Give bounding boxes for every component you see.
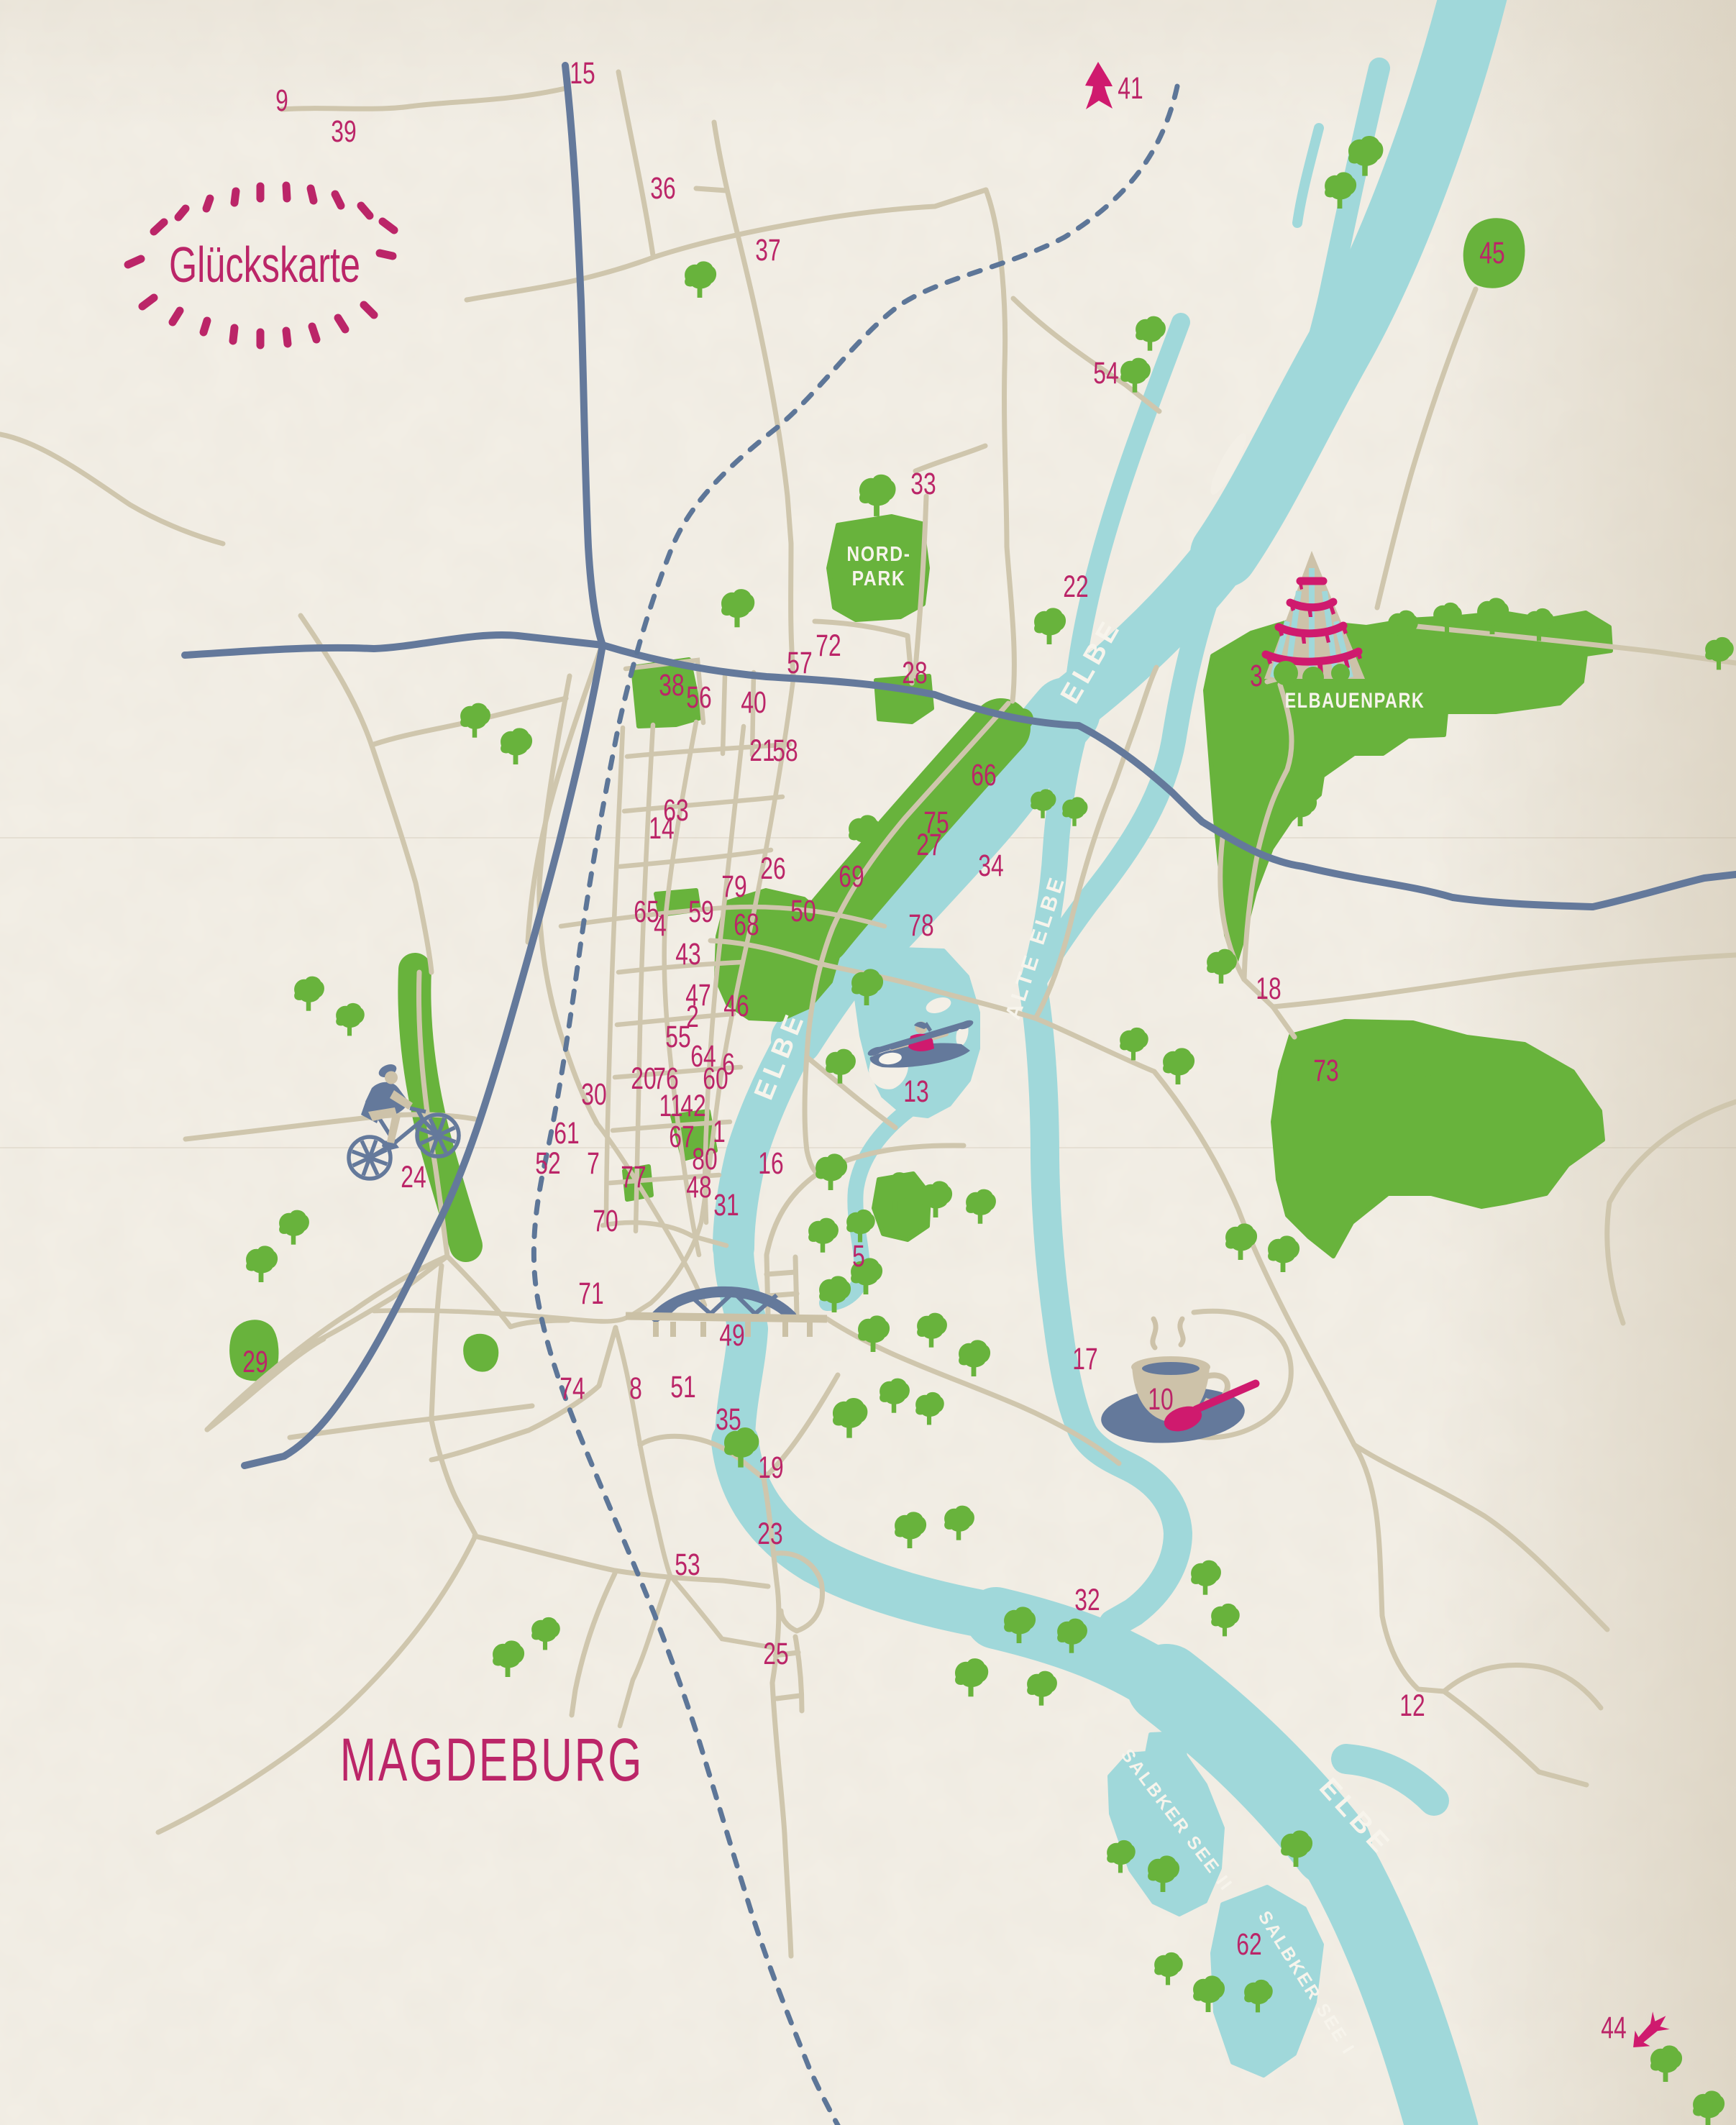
svg-text:33: 33 — [910, 467, 936, 501]
svg-text:73: 73 — [1313, 1054, 1338, 1088]
svg-text:70: 70 — [593, 1204, 618, 1238]
svg-text:30: 30 — [581, 1077, 606, 1112]
svg-text:78: 78 — [908, 908, 933, 943]
svg-text:34: 34 — [978, 849, 1003, 883]
svg-text:52: 52 — [535, 1146, 560, 1181]
svg-text:14: 14 — [649, 811, 674, 846]
svg-text:12: 12 — [1399, 1688, 1425, 1723]
svg-text:60: 60 — [703, 1061, 728, 1096]
svg-text:57: 57 — [787, 646, 812, 680]
svg-text:Glückskarte: Glückskarte — [169, 237, 360, 293]
svg-text:22: 22 — [1063, 570, 1088, 604]
svg-text:68: 68 — [734, 908, 759, 942]
svg-text:54: 54 — [1093, 356, 1118, 390]
svg-text:61: 61 — [554, 1116, 579, 1151]
svg-text:23: 23 — [757, 1517, 782, 1551]
svg-text:4: 4 — [654, 908, 667, 943]
svg-text:49: 49 — [719, 1318, 744, 1353]
svg-text:NORD-: NORD- — [846, 542, 910, 565]
svg-text:21: 21 — [749, 734, 775, 768]
svg-text:43: 43 — [675, 937, 700, 972]
svg-text:55: 55 — [665, 1020, 690, 1054]
svg-text:17: 17 — [1072, 1342, 1097, 1376]
svg-text:31: 31 — [713, 1188, 739, 1223]
svg-text:8: 8 — [629, 1371, 642, 1406]
svg-text:72: 72 — [816, 629, 841, 663]
svg-text:44: 44 — [1601, 2011, 1626, 2045]
svg-text:37: 37 — [755, 233, 780, 268]
svg-text:ELBAUENPARK: ELBAUENPARK — [1285, 688, 1425, 712]
svg-text:28: 28 — [902, 656, 927, 690]
svg-text:51: 51 — [670, 1370, 695, 1404]
svg-text:79: 79 — [721, 869, 746, 904]
svg-text:48: 48 — [686, 1170, 711, 1205]
svg-text:13: 13 — [903, 1074, 928, 1109]
svg-text:MAGDEBURG: MAGDEBURG — [340, 1726, 644, 1793]
svg-text:39: 39 — [331, 114, 356, 149]
svg-text:71: 71 — [578, 1276, 603, 1311]
svg-text:59: 59 — [688, 895, 713, 929]
svg-text:24: 24 — [401, 1160, 426, 1194]
svg-text:62: 62 — [1236, 1927, 1261, 1962]
svg-text:35: 35 — [716, 1402, 741, 1437]
svg-text:15: 15 — [570, 56, 595, 91]
svg-text:77: 77 — [621, 1160, 646, 1194]
svg-text:26: 26 — [760, 851, 785, 886]
svg-text:67: 67 — [669, 1120, 694, 1154]
svg-text:46: 46 — [723, 989, 749, 1023]
svg-text:32: 32 — [1074, 1583, 1100, 1617]
svg-text:5: 5 — [852, 1239, 865, 1274]
svg-text:45: 45 — [1479, 236, 1504, 270]
svg-text:20: 20 — [631, 1061, 656, 1096]
svg-text:38: 38 — [659, 668, 684, 703]
svg-text:74: 74 — [559, 1371, 585, 1406]
svg-text:PARK: PARK — [852, 567, 906, 590]
svg-text:42: 42 — [680, 1089, 705, 1123]
svg-text:27: 27 — [916, 828, 941, 862]
svg-text:36: 36 — [650, 171, 675, 206]
svg-text:40: 40 — [741, 685, 766, 720]
svg-text:10: 10 — [1148, 1382, 1173, 1417]
svg-text:19: 19 — [758, 1450, 783, 1485]
svg-text:41: 41 — [1118, 71, 1143, 106]
svg-text:16: 16 — [758, 1146, 783, 1181]
svg-text:11: 11 — [659, 1089, 682, 1123]
svg-text:66: 66 — [971, 758, 996, 792]
svg-text:50: 50 — [790, 894, 816, 928]
svg-text:29: 29 — [242, 1345, 268, 1379]
svg-text:18: 18 — [1256, 972, 1281, 1006]
svg-text:53: 53 — [675, 1548, 700, 1582]
svg-text:58: 58 — [772, 734, 798, 768]
svg-text:56: 56 — [686, 680, 711, 715]
svg-text:25: 25 — [763, 1637, 788, 1671]
svg-text:9: 9 — [275, 83, 288, 118]
svg-text:3: 3 — [1250, 659, 1263, 693]
svg-text:7: 7 — [587, 1146, 600, 1181]
svg-text:69: 69 — [839, 859, 864, 894]
